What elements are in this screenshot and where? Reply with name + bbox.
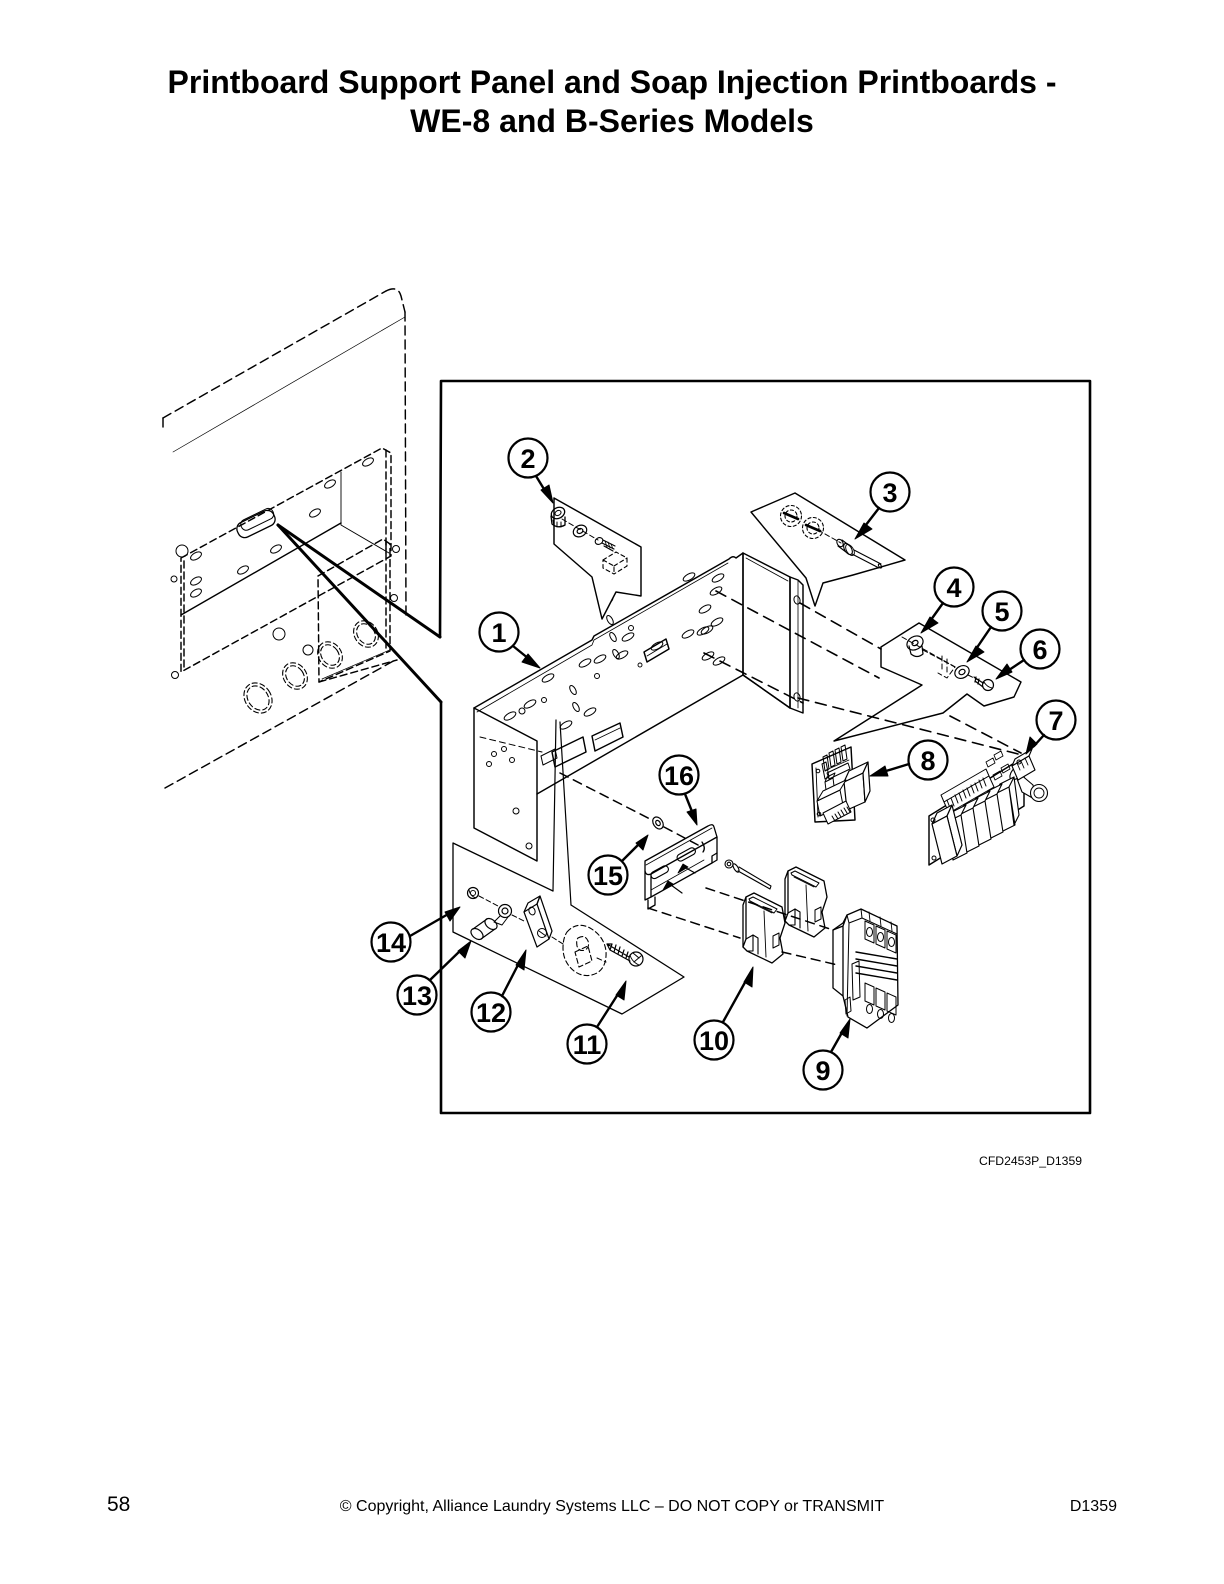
svg-text:1: 1 — [491, 618, 506, 648]
svg-text:16: 16 — [664, 761, 694, 791]
svg-text:3: 3 — [882, 478, 897, 508]
svg-text:58: 58 — [107, 1493, 130, 1516]
svg-text:© Copyright, Alliance Laundry: © Copyright, Alliance Laundry Systems LL… — [340, 1498, 885, 1515]
svg-text:D1359: D1359 — [1070, 1498, 1117, 1515]
svg-text:8: 8 — [920, 746, 935, 776]
svg-text:5: 5 — [994, 597, 1009, 627]
svg-text:7: 7 — [1048, 706, 1063, 736]
svg-text:2: 2 — [520, 444, 535, 474]
svg-text:CFD2453P_D1359: CFD2453P_D1359 — [979, 1154, 1082, 1168]
svg-text:4: 4 — [946, 573, 961, 603]
svg-text:15: 15 — [593, 861, 623, 891]
svg-text:9: 9 — [815, 1056, 830, 1086]
svg-text:11: 11 — [573, 1030, 602, 1060]
svg-text:10: 10 — [699, 1026, 729, 1056]
svg-text:13: 13 — [402, 981, 432, 1011]
svg-text:12: 12 — [476, 998, 506, 1028]
svg-text:6: 6 — [1032, 635, 1047, 665]
svg-text:14: 14 — [376, 928, 406, 958]
